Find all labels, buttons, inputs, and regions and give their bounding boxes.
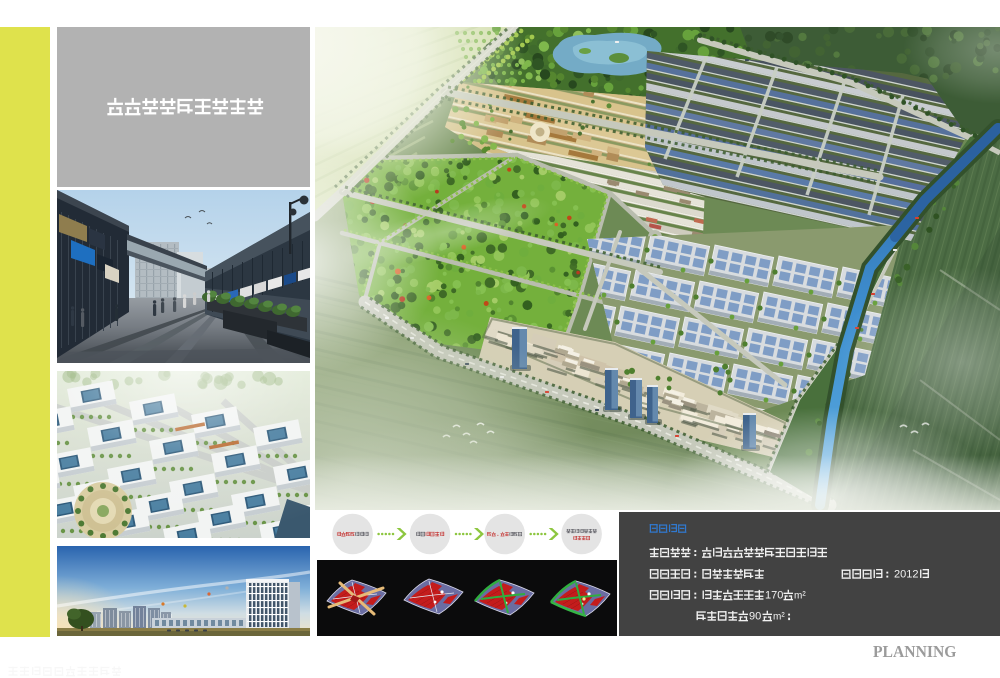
- svg-text:2012: 2012: [894, 569, 918, 581]
- svg-text:90: 90: [749, 611, 761, 623]
- svg-text:170: 170: [765, 590, 783, 602]
- svg-text:m²: m²: [794, 591, 806, 602]
- svg-text:m²: m²: [773, 612, 785, 623]
